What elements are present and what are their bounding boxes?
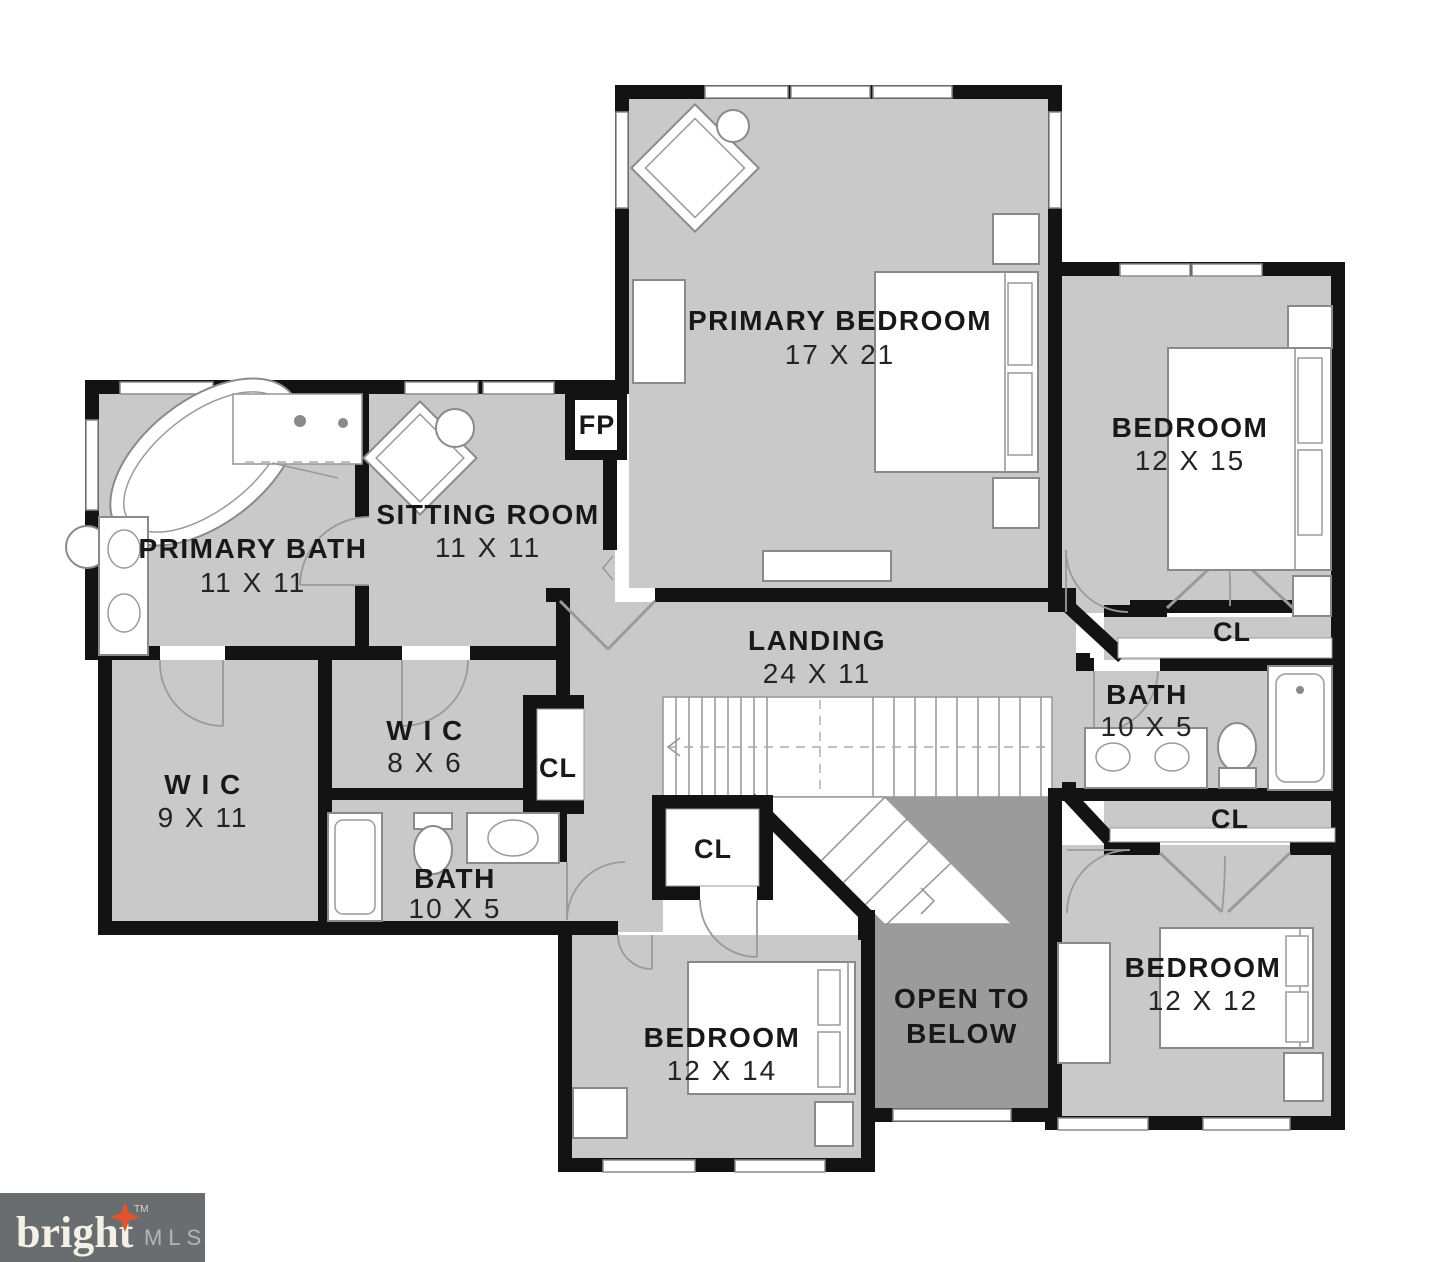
dims-wic-small: 8 X 6 [387, 747, 462, 778]
label-bath-left: BATH [414, 863, 496, 894]
label-sitting-room: SITTING ROOM [376, 499, 599, 530]
label-cl-center: CL [694, 834, 732, 864]
label-wic-large: W I C [164, 769, 242, 800]
label-bedroom-bottom-right: BEDROOM [1125, 952, 1282, 983]
dims-bedroom-bottom-right: 12 X 12 [1148, 985, 1259, 1016]
label-wic-small: W I C [386, 715, 464, 746]
dims-primary-bath: 11 X 11 [200, 567, 306, 598]
label-landing: LANDING [748, 625, 886, 656]
dims-bedroom-right: 12 X 15 [1135, 445, 1246, 476]
label-open-to-below-1: OPEN TO [894, 983, 1030, 1014]
label-cl-left: CL [539, 753, 577, 783]
label-bedroom-right: BEDROOM [1112, 412, 1269, 443]
dims-bedroom-bottom: 12 X 14 [667, 1055, 778, 1086]
label-bedroom-bottom: BEDROOM [644, 1022, 801, 1053]
dims-sitting-room: 11 X 11 [435, 532, 541, 563]
brand-logo: bright TM MLS [0, 1193, 207, 1262]
logo-mls-text: MLS [144, 1225, 207, 1250]
dims-bath-right: 10 X 5 [1101, 711, 1194, 742]
label-cl-bottom-right: CL [1211, 804, 1249, 834]
label-cl-top-right: CL [1213, 617, 1251, 647]
label-primary-bath: PRIMARY BATH [138, 533, 367, 564]
dims-primary-bedroom: 17 X 21 [785, 339, 896, 370]
label-primary-bedroom: PRIMARY BEDROOM [688, 305, 992, 336]
dims-landing: 24 X 11 [763, 658, 871, 689]
shower [233, 394, 362, 464]
floor-plan: PRIMARY BEDROOM 17 X 21 BEDROOM 12 X 15 … [0, 0, 1440, 1262]
floor-plan-page: PRIMARY BEDROOM 17 X 21 BEDROOM 12 X 15 … [0, 0, 1440, 1262]
dims-wic-large: 9 X 11 [158, 802, 249, 833]
label-fireplace: FP [579, 410, 616, 440]
label-bath-right: BATH [1106, 679, 1188, 710]
dims-bath-left: 10 X 5 [409, 893, 502, 924]
logo-tm-mark: TM [134, 1204, 148, 1215]
label-open-to-below-2: BELOW [906, 1018, 1018, 1049]
